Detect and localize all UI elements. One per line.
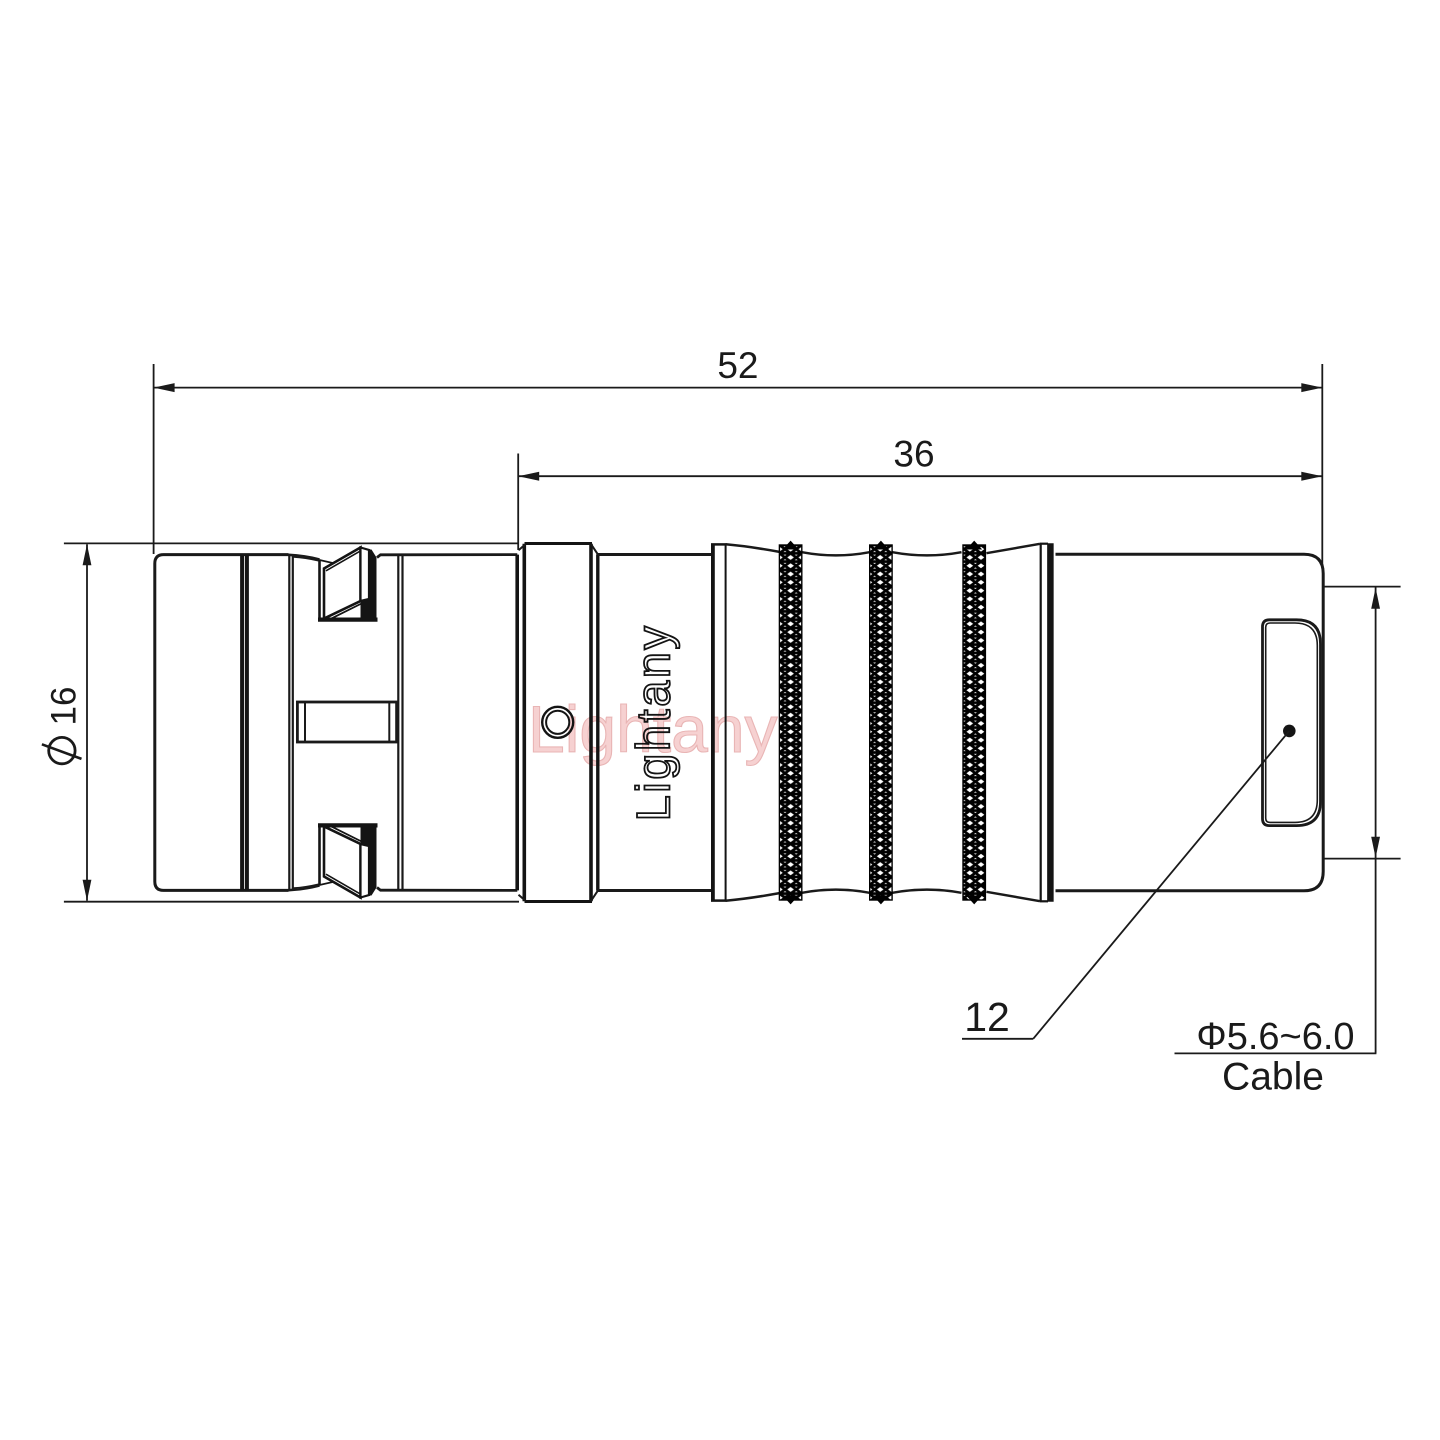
svg-text:Φ5.6~6.0: Φ5.6~6.0	[1196, 1016, 1354, 1058]
svg-text:Cable: Cable	[1222, 1056, 1324, 1099]
svg-text:16: 16	[45, 687, 84, 726]
svg-text:Lightany: Lightany	[627, 624, 680, 822]
svg-text:12: 12	[964, 994, 1010, 1040]
svg-text:52: 52	[717, 345, 758, 386]
svg-text:36: 36	[893, 434, 934, 475]
